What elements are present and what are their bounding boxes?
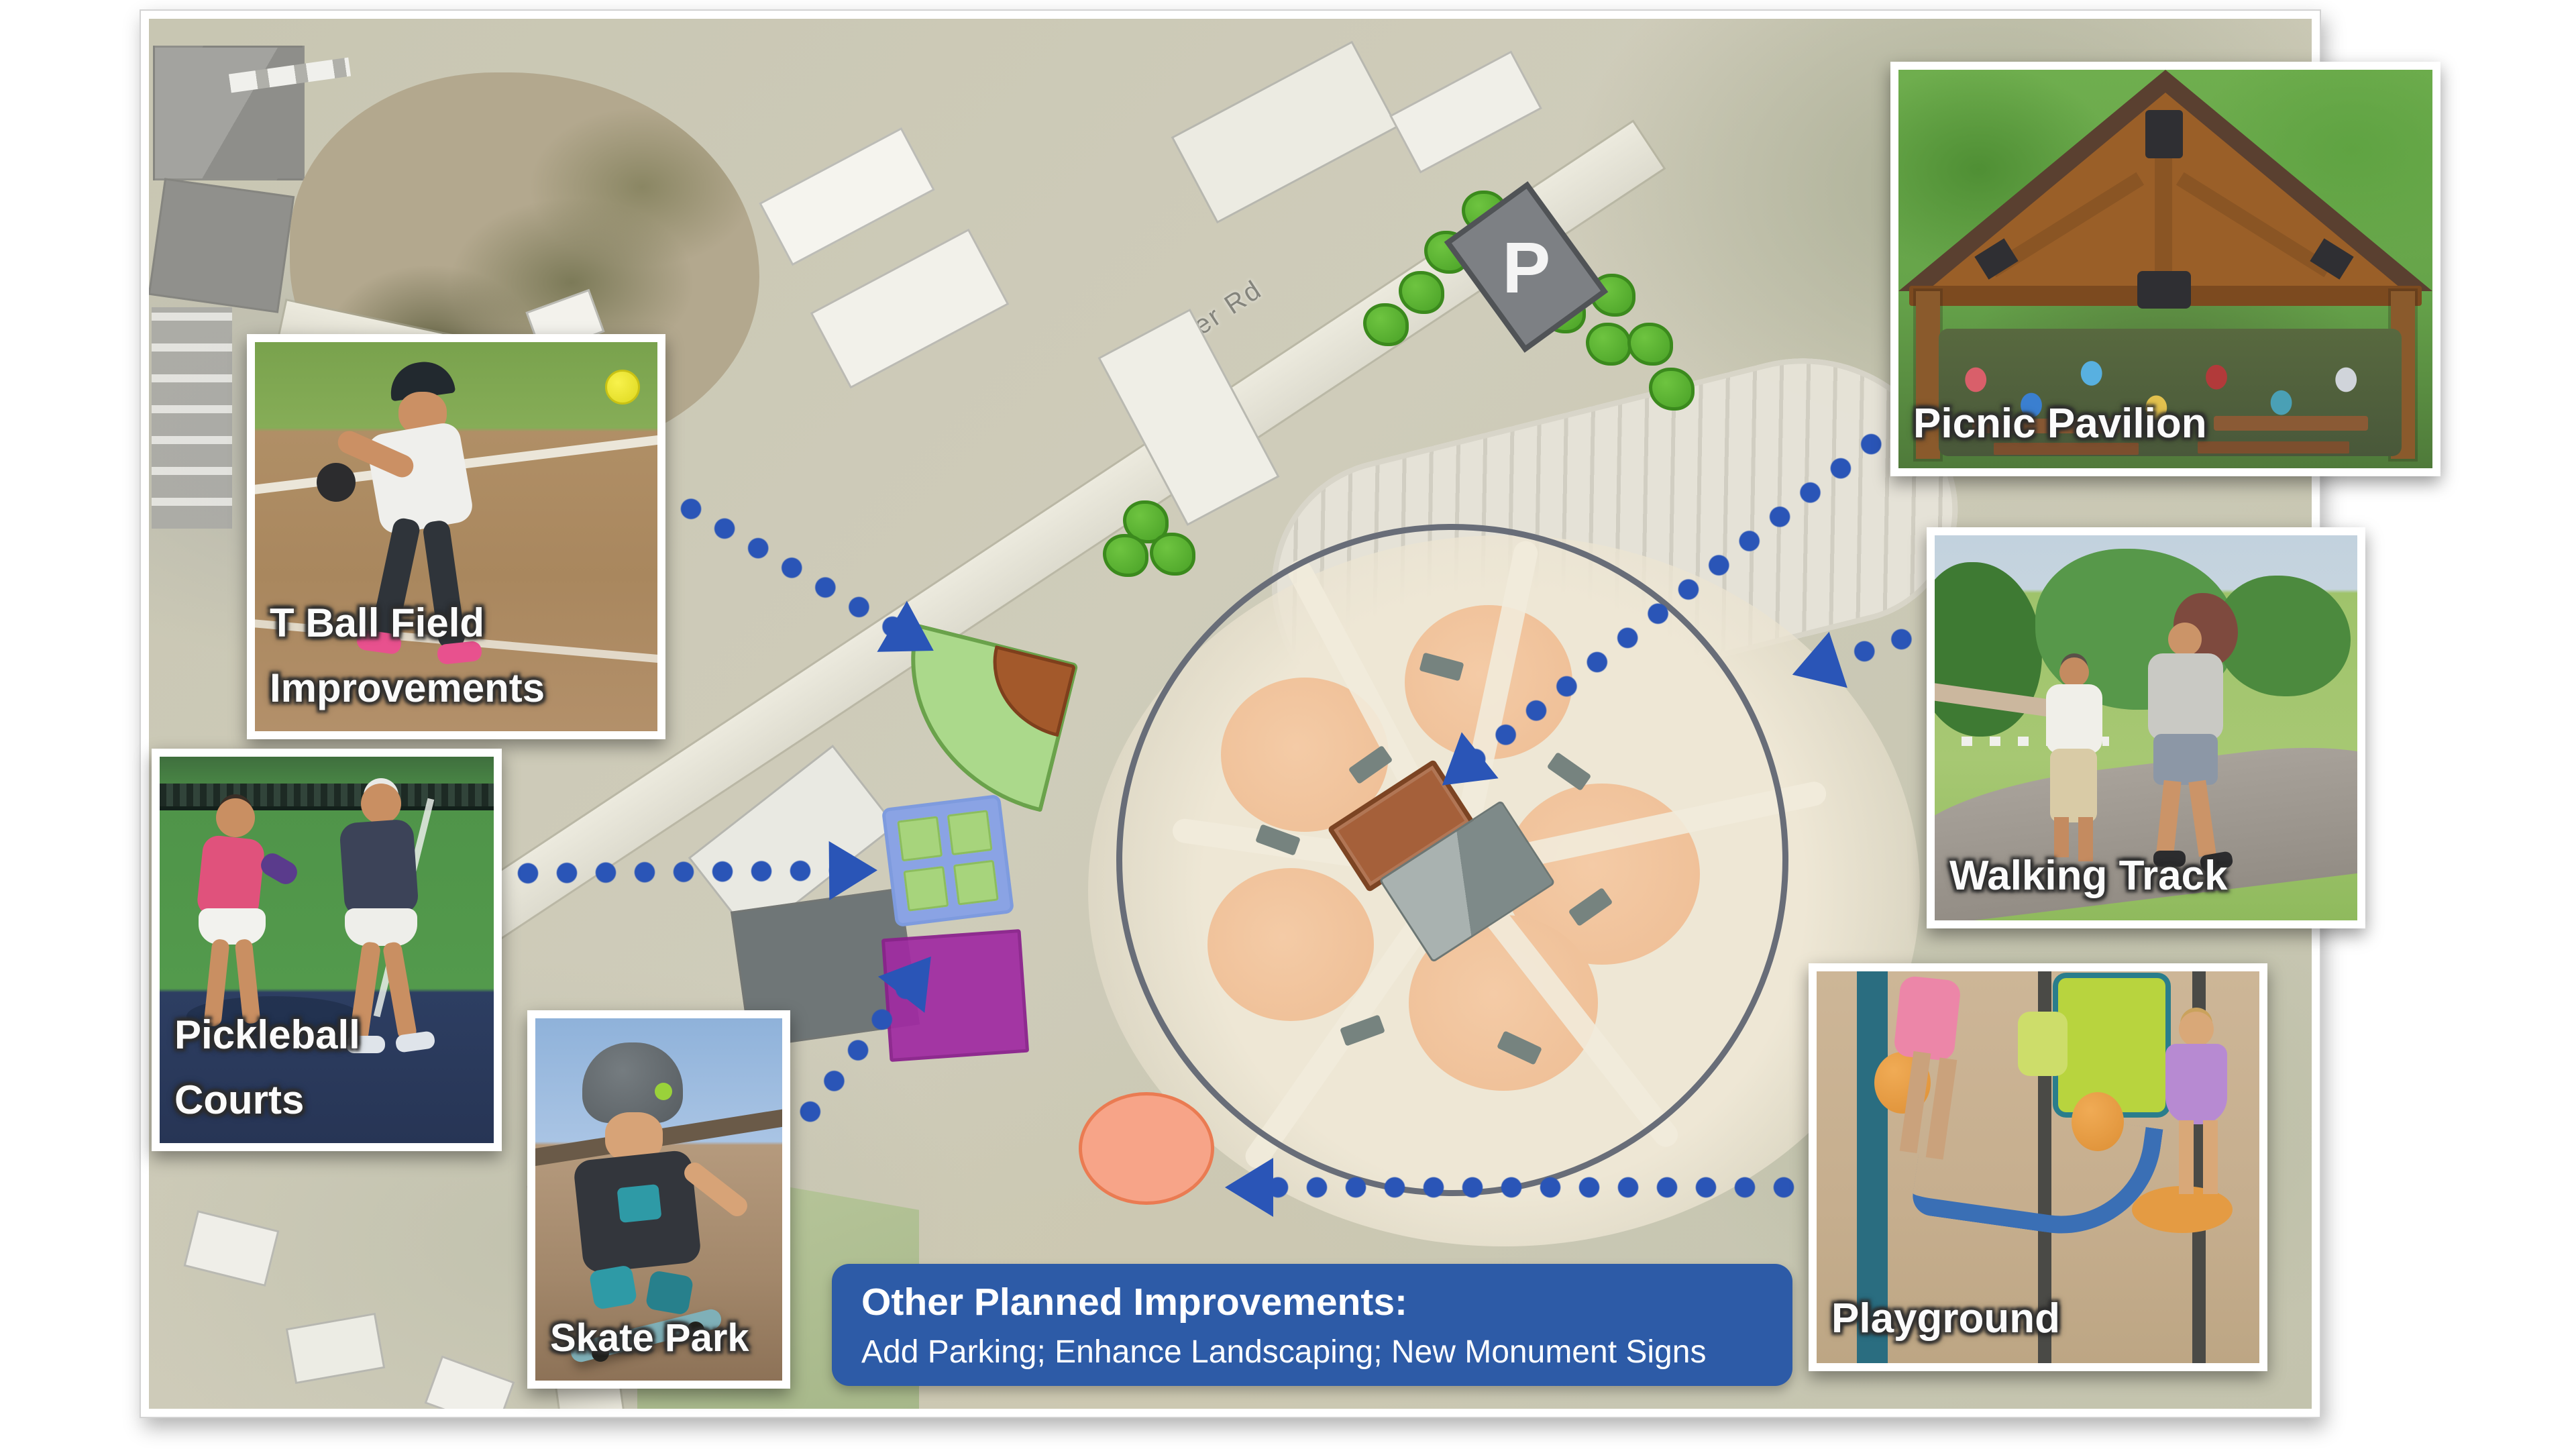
callout-label: Skate Park	[550, 1307, 749, 1370]
pickleball-court-cell	[953, 860, 999, 906]
player-pink-skirt	[199, 908, 266, 945]
player-navy-leg	[382, 941, 418, 1041]
pickleball-court-cell	[947, 810, 993, 855]
parking-sign-letter: P	[1502, 225, 1550, 309]
kid-purple-head	[2179, 1012, 2214, 1046]
building	[759, 127, 935, 266]
walker-man-head	[2168, 623, 2202, 656]
player-jersey	[365, 421, 475, 536]
house	[183, 1210, 279, 1287]
orange-pod	[2072, 1092, 2124, 1151]
walker-woman-top	[2046, 684, 2102, 754]
walker-man-tee	[2148, 653, 2223, 741]
walker-man-shorts	[2153, 734, 2218, 785]
player-glove	[317, 463, 356, 502]
callout-walking: Walking Track	[1927, 527, 2365, 928]
truss-bracket	[2145, 110, 2183, 158]
shirt-graphic	[616, 1184, 661, 1223]
helmet-dot	[655, 1083, 672, 1100]
building	[149, 178, 294, 313]
truss-bracket	[2137, 271, 2191, 309]
net	[160, 784, 494, 810]
player-navy-head	[361, 784, 401, 824]
building	[810, 229, 1010, 389]
skater-helmet	[582, 1042, 683, 1123]
kid-purple-dress	[2165, 1044, 2227, 1124]
picnic-table	[2214, 416, 2368, 431]
walking-photo: Walking Track	[1935, 535, 2357, 920]
player-navy-skirt	[345, 908, 417, 946]
kid-purple-legs	[2179, 1120, 2194, 1194]
playground-overlay	[1079, 1092, 1214, 1205]
other-improvements-banner: Other Planned Improvements: Add Parking;…	[832, 1264, 1792, 1386]
pickleball-court-cell	[897, 816, 943, 861]
kid-green	[2018, 1012, 2068, 1076]
building	[1389, 50, 1542, 173]
tball-photo: T Ball Field Improvements	[255, 342, 657, 731]
callout-pickleball: Pickleball Courts	[152, 749, 502, 1151]
callout-label: Pickleball Courts	[174, 1002, 360, 1132]
house	[425, 1355, 515, 1409]
play-panel-lime	[2058, 978, 2165, 1112]
player-navy-top	[339, 818, 419, 917]
tball-infield-overlay	[977, 645, 1076, 737]
pickleball-courts-overlay	[881, 794, 1014, 927]
callout-playground: Playground	[1809, 963, 2267, 1371]
tree-icon	[1627, 323, 1673, 366]
pavilion-photo: Picnic Pavilion	[1898, 70, 2432, 468]
callout-label: Walking Track	[1949, 843, 2228, 910]
walker-woman-head	[2059, 657, 2089, 687]
skate-photo: Skate Park	[535, 1018, 782, 1381]
callout-label: Playground	[1831, 1285, 2060, 1352]
kid-pink	[1893, 975, 1962, 1062]
callout-label: T Ball Field Improvements	[270, 590, 545, 720]
knee-pad	[588, 1265, 637, 1310]
pickleball-photo: Pickleball Courts	[160, 757, 494, 1143]
callout-label: Picnic Pavilion	[1913, 390, 2207, 458]
tree-icon	[1150, 533, 1195, 576]
banner-title: Other Planned Improvements:	[861, 1280, 1792, 1324]
parking-strip	[152, 307, 232, 529]
tree-icon	[1586, 323, 1631, 366]
building	[153, 46, 305, 180]
tree-icon	[1103, 534, 1148, 577]
callout-tball: T Ball Field Improvements	[247, 334, 665, 739]
callout-skate: Skate Park	[527, 1010, 790, 1389]
softball	[605, 370, 640, 405]
play-tube-blue	[1910, 1096, 2163, 1246]
arrow-pickleball	[508, 841, 878, 903]
building	[1171, 41, 1399, 224]
pickleball-court-cell	[903, 866, 949, 912]
callout-pavilion: Picnic Pavilion	[1890, 62, 2440, 476]
walker-woman-capris	[2050, 749, 2097, 822]
house	[286, 1313, 386, 1384]
player-pink-head	[216, 798, 255, 837]
playground-photo: Playground	[1817, 971, 2259, 1363]
arrow-playground	[1225, 1158, 1803, 1217]
banner-details: Add Parking; Enhance Landscaping; New Mo…	[861, 1334, 1792, 1371]
